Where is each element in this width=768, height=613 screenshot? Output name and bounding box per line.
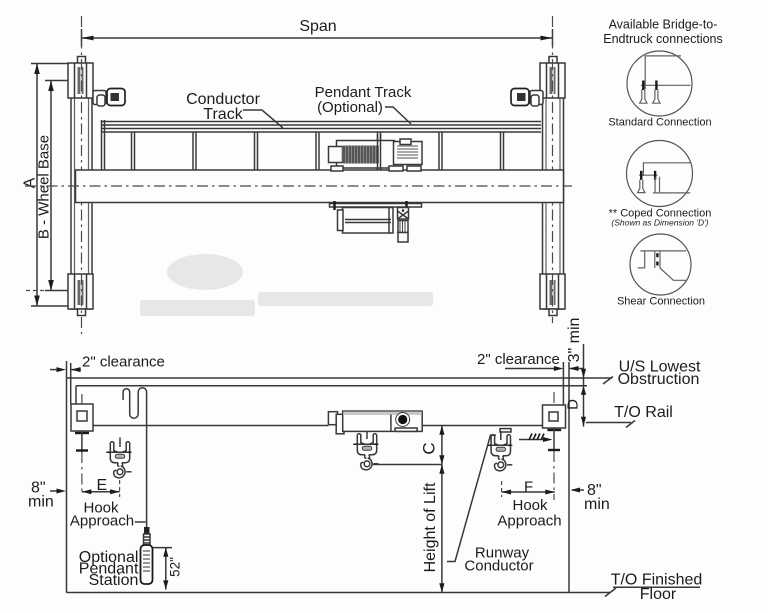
svg-text:2" clearance: 2" clearance <box>477 351 560 368</box>
svg-text:Track: Track <box>203 106 243 123</box>
svg-text:F: F <box>524 479 533 496</box>
svg-text:Height of Lift: Height of Lift <box>422 482 439 572</box>
svg-text:3" min: 3" min <box>566 318 583 363</box>
svg-text:Obstruction: Obstruction <box>618 371 700 388</box>
svg-text:(Shown as Dimension 'D'): (Shown as Dimension 'D') <box>611 218 708 228</box>
svg-text:Conductor: Conductor <box>464 558 533 575</box>
svg-text:E: E <box>97 477 108 494</box>
svg-text:(Optional): (Optional) <box>317 99 383 116</box>
svg-text:Span: Span <box>299 18 336 35</box>
svg-text:Hook: Hook <box>512 497 548 514</box>
svg-text:C: C <box>420 442 439 454</box>
svg-text:Approach: Approach <box>70 513 134 530</box>
svg-text:Standard Connection: Standard Connection <box>608 117 711 129</box>
svg-text:52": 52" <box>168 557 183 577</box>
svg-text:T/O Rail: T/O Rail <box>614 404 673 421</box>
svg-text:B - Wheel Base: B - Wheel Base <box>36 135 53 239</box>
svg-text:min: min <box>584 496 610 513</box>
svg-text:Approach: Approach <box>497 513 561 530</box>
svg-text:Endtruck connections: Endtruck connections <box>603 32 723 46</box>
svg-text:Station: Station <box>89 572 139 589</box>
svg-text:2" clearance: 2" clearance <box>82 354 165 371</box>
svg-text:Available Bridge-to-: Available Bridge-to- <box>609 18 718 32</box>
svg-text:D: D <box>565 399 582 410</box>
svg-text:min: min <box>28 494 54 511</box>
svg-text:Shear Connection: Shear Connection <box>617 296 705 308</box>
svg-text:Floor: Floor <box>640 586 677 603</box>
